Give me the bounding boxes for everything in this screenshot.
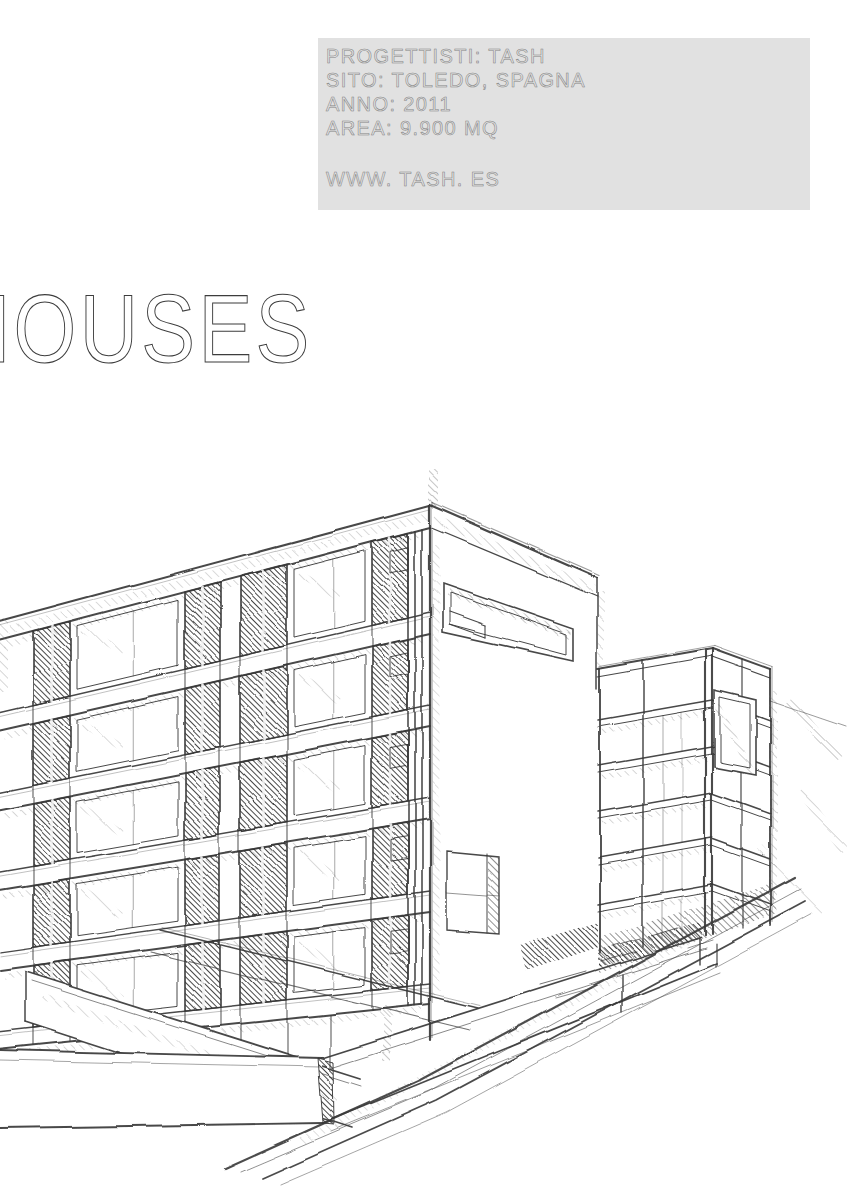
page: { "page": { "background": "#ffffff" }, "… <box>0 0 847 1199</box>
building-sketch-illustration <box>0 0 847 1199</box>
portfolio-page: PROGETTISTI: TASH SITO: TOLEDO, SPAGNA A… <box>0 0 847 1199</box>
